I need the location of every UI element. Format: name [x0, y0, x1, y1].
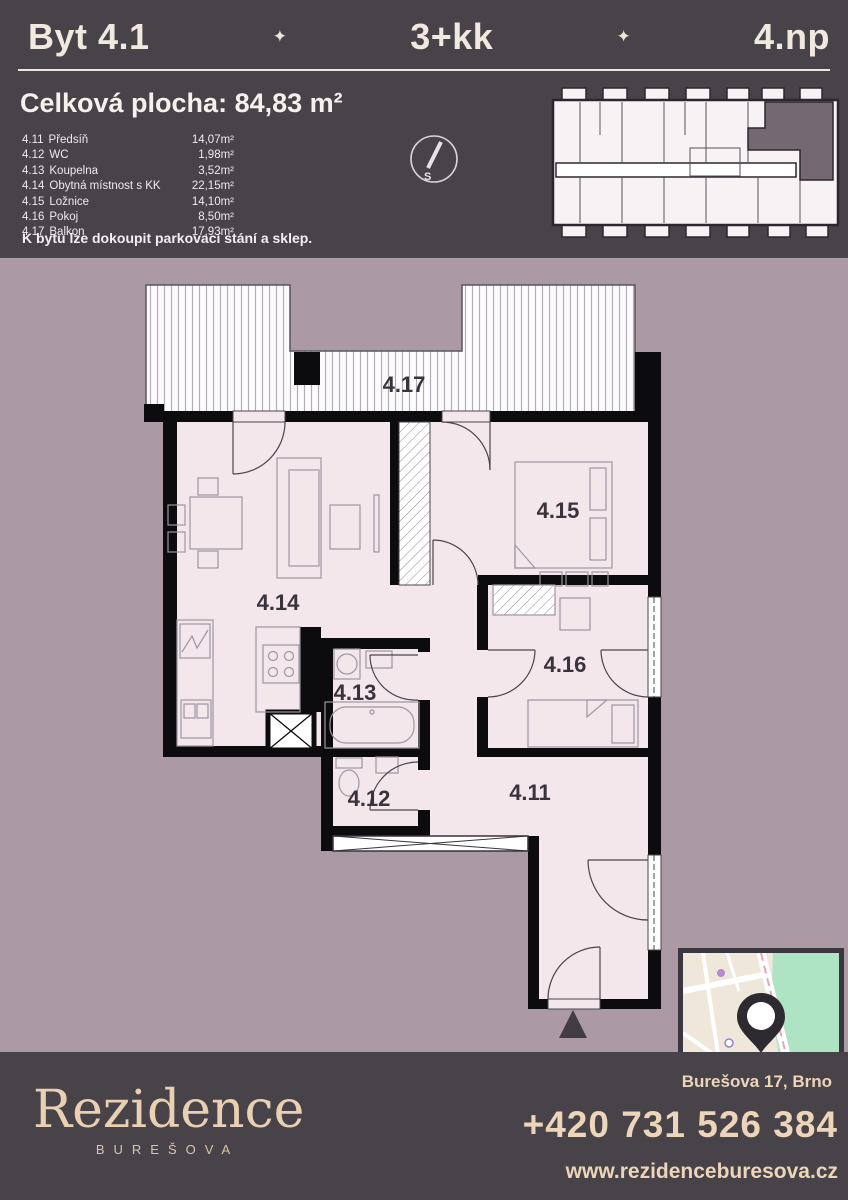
- room-area: 1,98m²: [198, 148, 234, 163]
- room-id: 4.16: [22, 210, 44, 225]
- contact-block: Burešova 17, Brno +420 731 526 384 www.r…: [523, 1072, 838, 1184]
- brand-subtitle: BUREŠOVA: [42, 1142, 293, 1157]
- total-area: Celková plocha: 84,83 m²: [20, 88, 343, 119]
- room-id: 4.14: [22, 179, 44, 194]
- svg-text:S: S: [424, 171, 431, 183]
- room-name: Obytná místnost s KK: [49, 179, 160, 194]
- floor-title: 4.np: [754, 16, 830, 58]
- overview-corridor: [556, 163, 796, 177]
- header-divider: [18, 69, 830, 71]
- room-area: 3,52m²: [198, 164, 234, 179]
- room-name: Pokoj: [49, 210, 78, 225]
- label-bedroom: 4.15: [537, 498, 580, 523]
- address-text: Burešova 17, Brno: [523, 1072, 832, 1092]
- room-area-list: 4.11Předsíň 14,07m² 4.12WC 1,98m² 4.13Ko…: [22, 133, 234, 241]
- building-overview-plan: [540, 80, 848, 242]
- room-area: 8,50m²: [198, 210, 234, 225]
- floorplan: 4.17: [100, 258, 700, 1052]
- label-living-room: 4.14: [257, 590, 301, 615]
- hall-wardrobe-icon: [333, 836, 528, 851]
- top-panel: Byt 4.1 ✦ 3+kk ✦ 4.np Celková plocha: 84…: [0, 0, 848, 258]
- balcony-wall-block: [294, 352, 320, 385]
- room-id: 4.12: [22, 148, 44, 163]
- entrance-opening: [548, 999, 600, 1009]
- room-row: 4.16Pokoj 8,50m²: [22, 210, 234, 225]
- room-row: 4.15Ložnice 14,10m²: [22, 195, 234, 210]
- wardrobe-icon: [493, 585, 555, 615]
- layout-title: 3+kk: [410, 16, 493, 58]
- label-hall: 4.11: [509, 780, 551, 805]
- entrance-arrow-icon: [559, 1010, 587, 1038]
- shaft-icon: [268, 712, 314, 750]
- room-name: WC: [49, 148, 68, 163]
- room-area: 14,07m²: [192, 133, 234, 148]
- room-id: 4.15: [22, 195, 44, 210]
- diamond-icon: ✦: [617, 27, 631, 47]
- label-room: 4.16: [544, 652, 587, 677]
- room-name: Ložnice: [49, 195, 89, 210]
- wardrobe-icon: [399, 422, 430, 585]
- phone-number: +420 731 526 384: [523, 1104, 838, 1146]
- room-row: 4.12WC 1,98m²: [22, 148, 234, 163]
- compass-icon: S: [405, 128, 465, 192]
- diamond-icon: ✦: [273, 27, 287, 47]
- room-id: 4.11: [22, 133, 44, 148]
- room-row: 4.13Koupelna 3,52m²: [22, 164, 234, 179]
- website-url: www.rezidenceburesova.cz: [523, 1160, 838, 1184]
- brand-name: Rezidence: [33, 1080, 293, 1140]
- header: Byt 4.1 ✦ 3+kk ✦ 4.np: [28, 16, 830, 58]
- room-id: 4.13: [22, 164, 44, 179]
- label-wc: 4.12: [348, 786, 391, 811]
- room-row: 4.11Předsíň 14,07m²: [22, 133, 234, 148]
- room-area: 22,15m²: [192, 179, 234, 194]
- room-name: Koupelna: [49, 164, 98, 179]
- room-name: Předsíň: [49, 133, 89, 148]
- label-bathroom: 4.13: [334, 680, 377, 705]
- unit-title: Byt 4.1: [28, 16, 150, 58]
- brand-logo: Rezidence BUREŠOVA: [33, 1080, 293, 1157]
- balcony-4-17: 4.17: [144, 285, 635, 422]
- room-area: 14,10m²: [192, 195, 234, 210]
- parking-note: K bytu lze dokoupit parkovací stání a sk…: [22, 230, 312, 246]
- room-row: 4.14Obytná místnost s KK 22,15m²: [22, 179, 234, 194]
- label-balcony: 4.17: [383, 372, 426, 397]
